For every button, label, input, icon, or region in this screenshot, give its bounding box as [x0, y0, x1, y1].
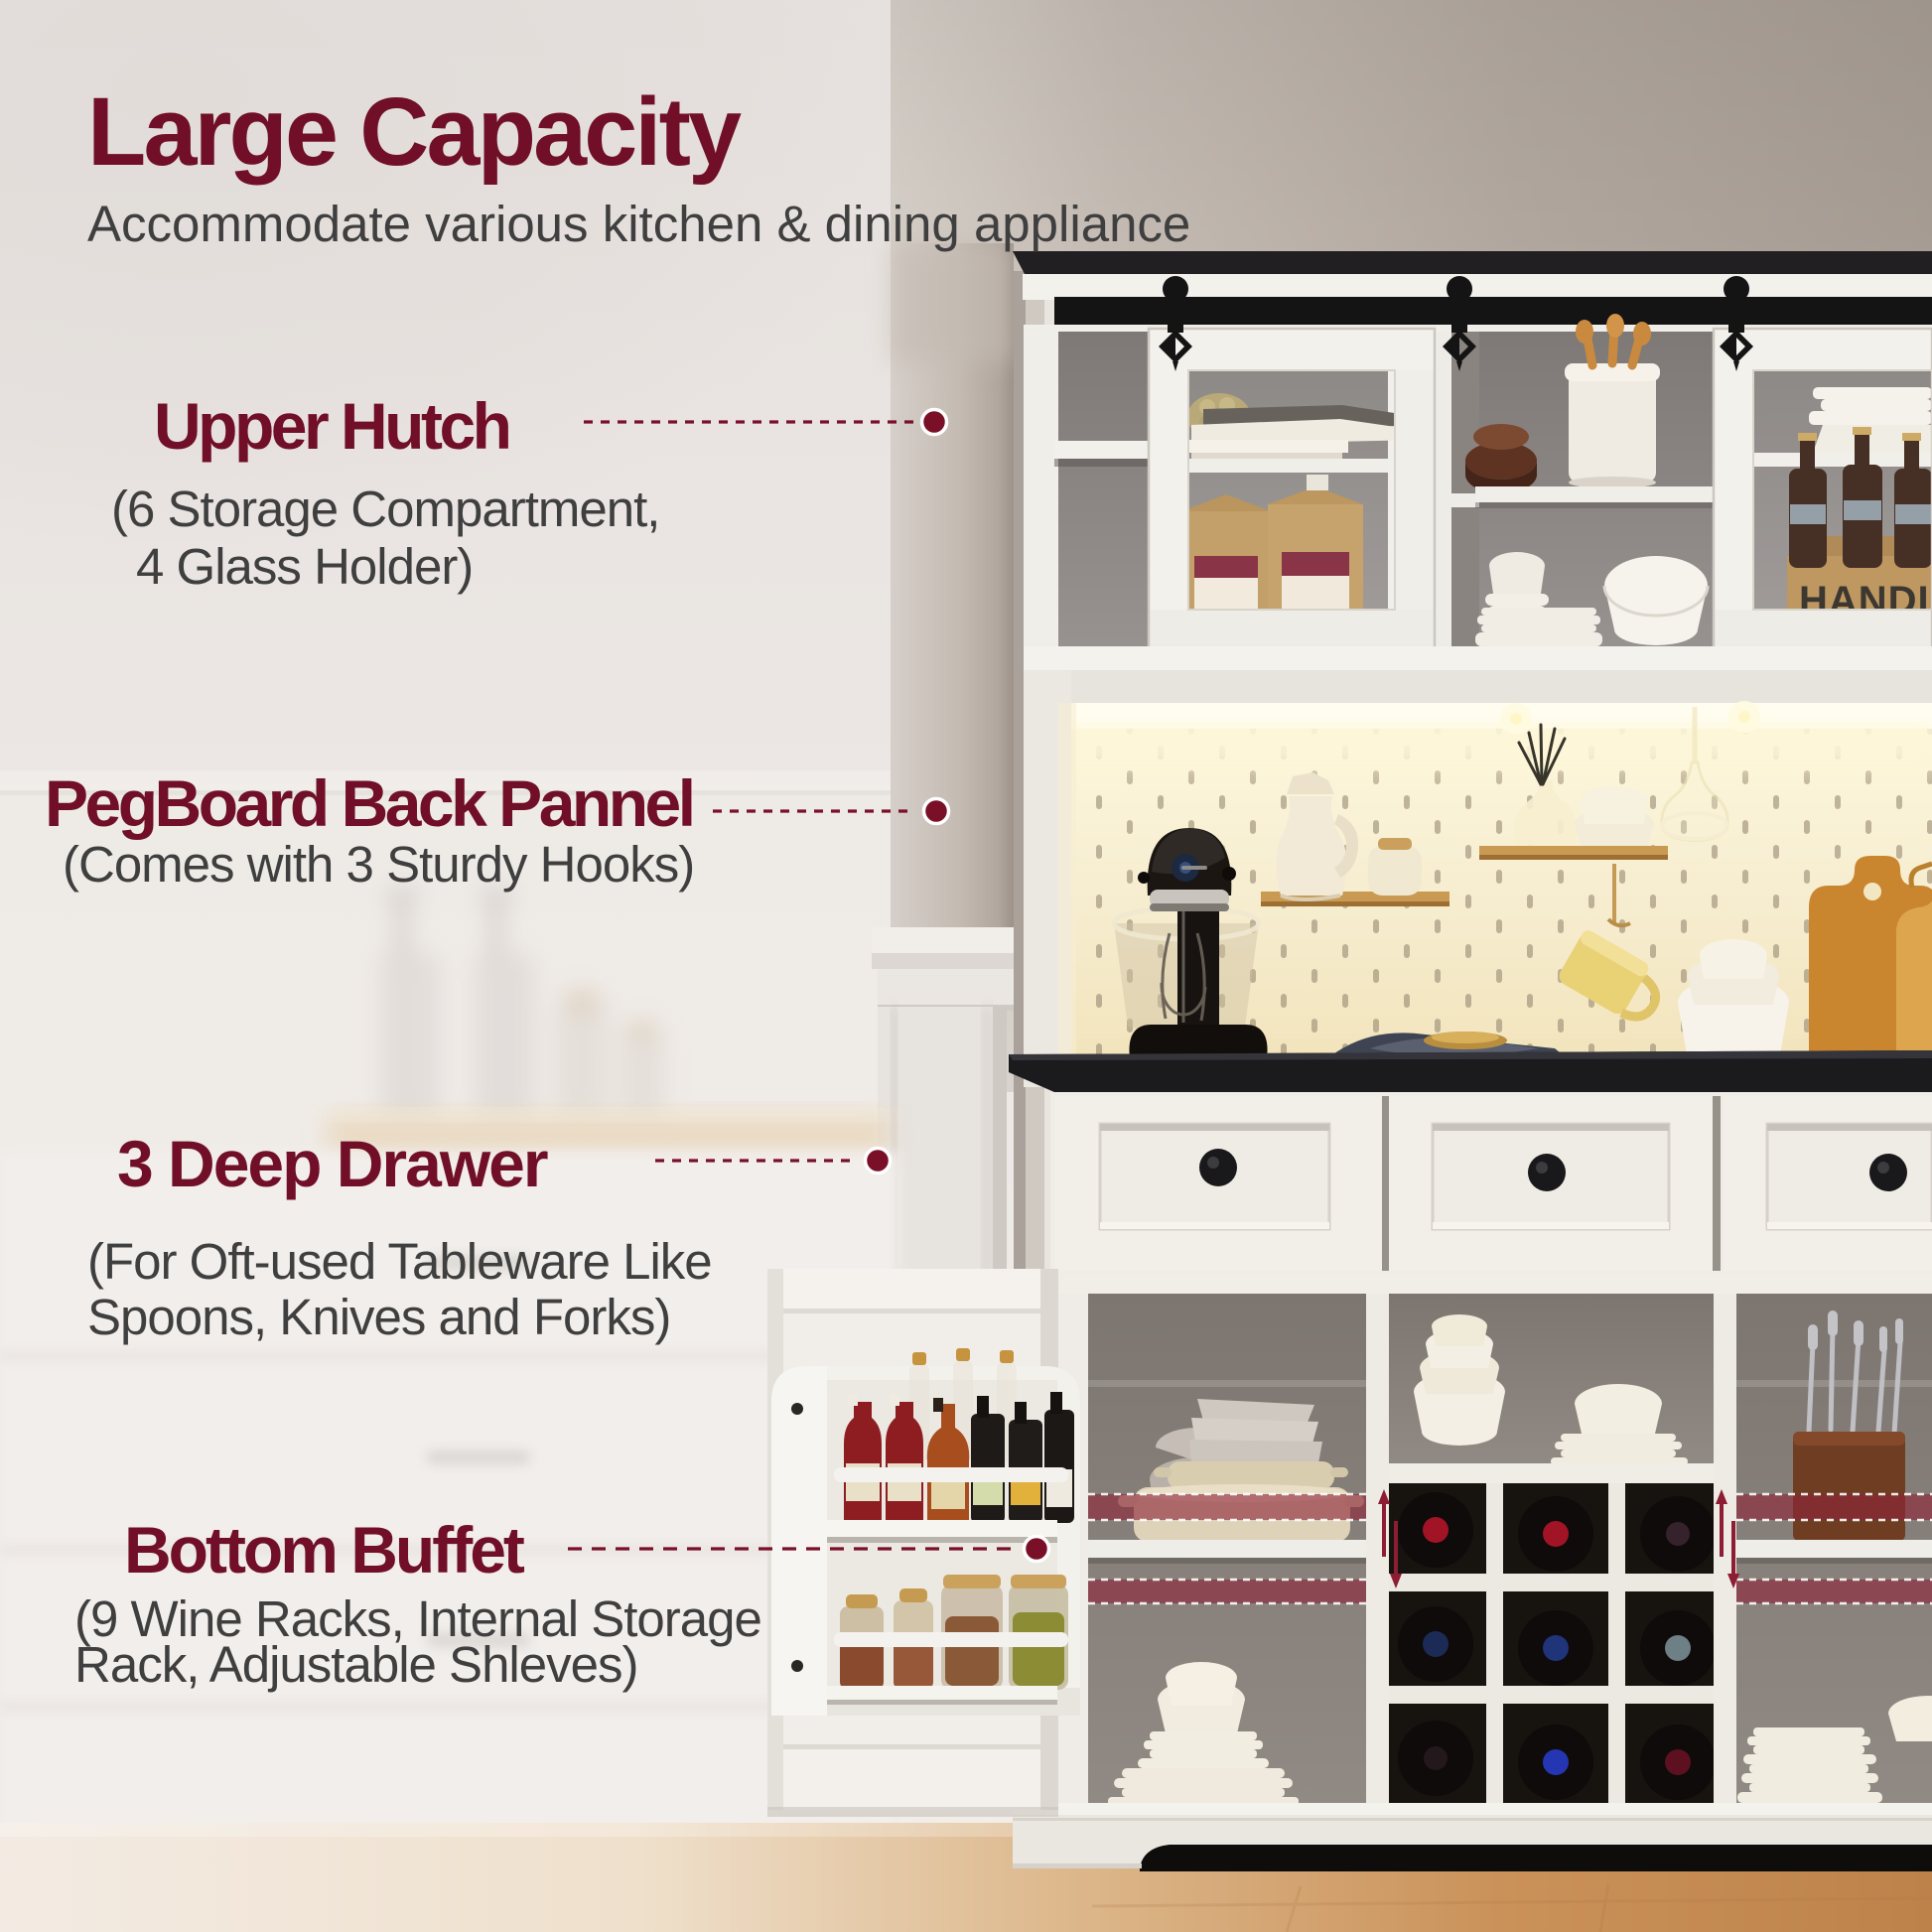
svg-text:(Comes with 3 Sturdy Hooks): (Comes with 3 Sturdy Hooks)	[63, 836, 694, 893]
svg-text:Spoons, Knives and Forks): Spoons, Knives and Forks)	[87, 1289, 670, 1345]
svg-text:Bottom Buffet: Bottom Buffet	[124, 1513, 525, 1587]
svg-text:Accommodate various kitchen &: Accommodate various kitchen & dining app…	[87, 196, 1190, 252]
svg-text:Rack, Adjustable Shleves): Rack, Adjustable Shleves)	[74, 1636, 637, 1693]
svg-text:(6 Storage Compartment,: (6 Storage Compartment,	[111, 481, 659, 537]
svg-text:3 Deep Drawer: 3 Deep Drawer	[117, 1127, 548, 1200]
svg-text:Large Capacity: Large Capacity	[87, 77, 742, 186]
svg-text:4 Glass Holder): 4 Glass Holder)	[136, 538, 473, 595]
svg-text:(For Oft-used Tableware Like: (For Oft-used Tableware Like	[87, 1233, 712, 1290]
svg-text:Upper Hutch: Upper Hutch	[154, 389, 509, 463]
svg-text:PegBoard Back Pannel: PegBoard Back Pannel	[45, 766, 693, 840]
